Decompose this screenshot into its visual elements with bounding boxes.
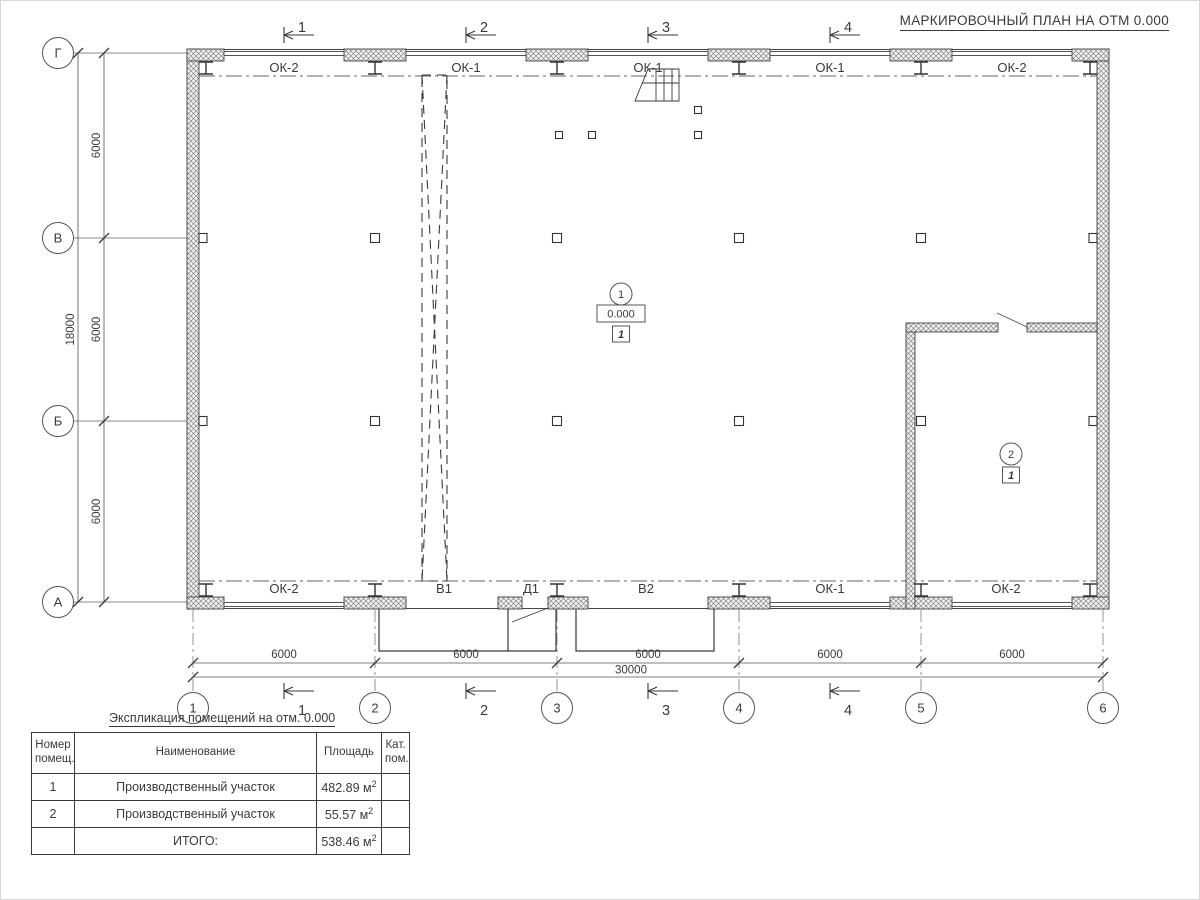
empty-cell [32, 828, 75, 855]
window-label: ОК-1 [451, 60, 480, 75]
dim-label: 6000 [91, 499, 103, 525]
window-label: ОК-2 [997, 60, 1026, 75]
dim-label: 6000 [91, 317, 103, 343]
axis-bubbles-layer [43, 38, 1119, 724]
gate-label: В1 [436, 581, 452, 596]
schedule-title: Экспликация помещений на отм. 0.000 [109, 711, 335, 727]
dim-label: 6000 [453, 649, 479, 661]
walls-layer [187, 49, 1109, 609]
details-layer [379, 69, 714, 651]
area-sup: 2 [372, 779, 377, 789]
header-room-category: Кат. пом. [382, 733, 410, 774]
dim-label: 6000 [999, 649, 1025, 661]
empty-cell [382, 828, 410, 855]
window-label: ОК-2 [269, 60, 298, 75]
dim-label: 6000 [91, 133, 103, 159]
header-room-area: Площадь [317, 733, 382, 774]
room-number: 2 [1008, 449, 1014, 461]
room-number-cell: 1 [32, 774, 75, 801]
room-marker-1: 1 0.000 1 [597, 283, 645, 342]
axis-lines-layer [73, 53, 1103, 692]
dim-label: 6000 [271, 649, 297, 661]
axis-row-label: Б [54, 414, 63, 429]
floor-plan-canvas: Г В Б А 1 2 3 4 5 6 1 2 3 4 1 [1, 1, 1200, 736]
axis-row-label: Г [54, 46, 61, 61]
drawing-sheet: МАРКИРОВОЧНЫЙ ПЛАН НА ОТМ 0.000 [0, 0, 1200, 900]
dimension-labels: 6000 6000 6000 6000 6000 30000 6000 6000… [65, 133, 1025, 677]
room-area-cell: 55.57 м2 [317, 801, 382, 828]
axis-row-label: В [54, 231, 63, 246]
schedule-row-2: 2 Производственный участок 55.57 м2 [32, 801, 410, 828]
area-value: 538.46 м [321, 835, 371, 849]
door-swing-d1 [512, 608, 548, 622]
section-label: 1 [298, 20, 306, 36]
porches [379, 609, 714, 651]
room-elevation: 0.000 [607, 309, 635, 321]
gate-label: В2 [638, 581, 654, 596]
room-category-cell [382, 774, 410, 801]
section-label: 3 [662, 20, 670, 36]
schedule-row-1: 1 Производственный участок 482.89 м2 [32, 774, 410, 801]
section-label: 2 [480, 703, 488, 719]
room-category: 1 [1008, 470, 1014, 482]
room-area-cell: 482.89 м2 [317, 774, 382, 801]
dim-total-label: 18000 [65, 314, 77, 346]
dim-label: 6000 [817, 649, 843, 661]
room-category-cell [382, 801, 410, 828]
schedule-table: Номер помещ. Наименование Площадь Кат. п… [31, 732, 410, 855]
schedule-total-row: ИТОГО: 538.46 м2 [32, 828, 410, 855]
axis-bubble-labels: Г В Б А 1 2 3 4 5 6 [54, 46, 1107, 716]
total-label-cell: ИТОГО: [75, 828, 317, 855]
room-name-cell: Производственный участок [75, 801, 317, 828]
area-value: 482.89 м [321, 781, 371, 795]
section-label: 4 [844, 20, 852, 36]
schedule-header-row: Номер помещ. Наименование Площадь Кат. п… [32, 733, 410, 774]
room-number-cell: 2 [32, 801, 75, 828]
axis-col-label: 4 [735, 701, 742, 716]
axis-col-label: 3 [553, 701, 560, 716]
axis-col-label: 5 [917, 701, 924, 716]
room-number: 1 [618, 289, 624, 301]
room-schedule: Экспликация помещений на отм. 0.000 Номе… [31, 709, 451, 855]
header-room-name: Наименование [75, 733, 317, 774]
area-sup: 2 [368, 806, 373, 816]
section-marker-labels: 1 2 3 4 1 2 3 4 [298, 20, 852, 719]
area-value: 55.57 м [325, 808, 368, 822]
axis-col-label: 6 [1099, 701, 1106, 716]
header-room-number: Номер помещ. [32, 733, 75, 774]
door-label: Д1 [523, 581, 539, 596]
total-area-cell: 538.46 м2 [317, 828, 382, 855]
dim-label: 6000 [635, 649, 661, 661]
axis-row-label: А [54, 595, 63, 610]
columns-layer [199, 107, 1097, 426]
section-label: 3 [662, 703, 670, 719]
dimension-layer [73, 48, 1108, 682]
window-label: ОК-1 [633, 60, 662, 75]
room-category: 1 [618, 329, 624, 341]
section-label: 2 [480, 20, 488, 36]
section-label: 4 [844, 703, 852, 719]
window-label: ОК-1 [815, 60, 844, 75]
window-label: ОК-2 [269, 581, 298, 596]
room-name-cell: Производственный участок [75, 774, 317, 801]
dim-total-label: 30000 [615, 665, 647, 677]
room-marker-2: 2 1 [1000, 443, 1022, 483]
window-label: ОК-2 [991, 581, 1020, 596]
area-sup: 2 [372, 833, 377, 843]
crane-strip [422, 75, 447, 581]
window-label: ОК-1 [815, 581, 844, 596]
